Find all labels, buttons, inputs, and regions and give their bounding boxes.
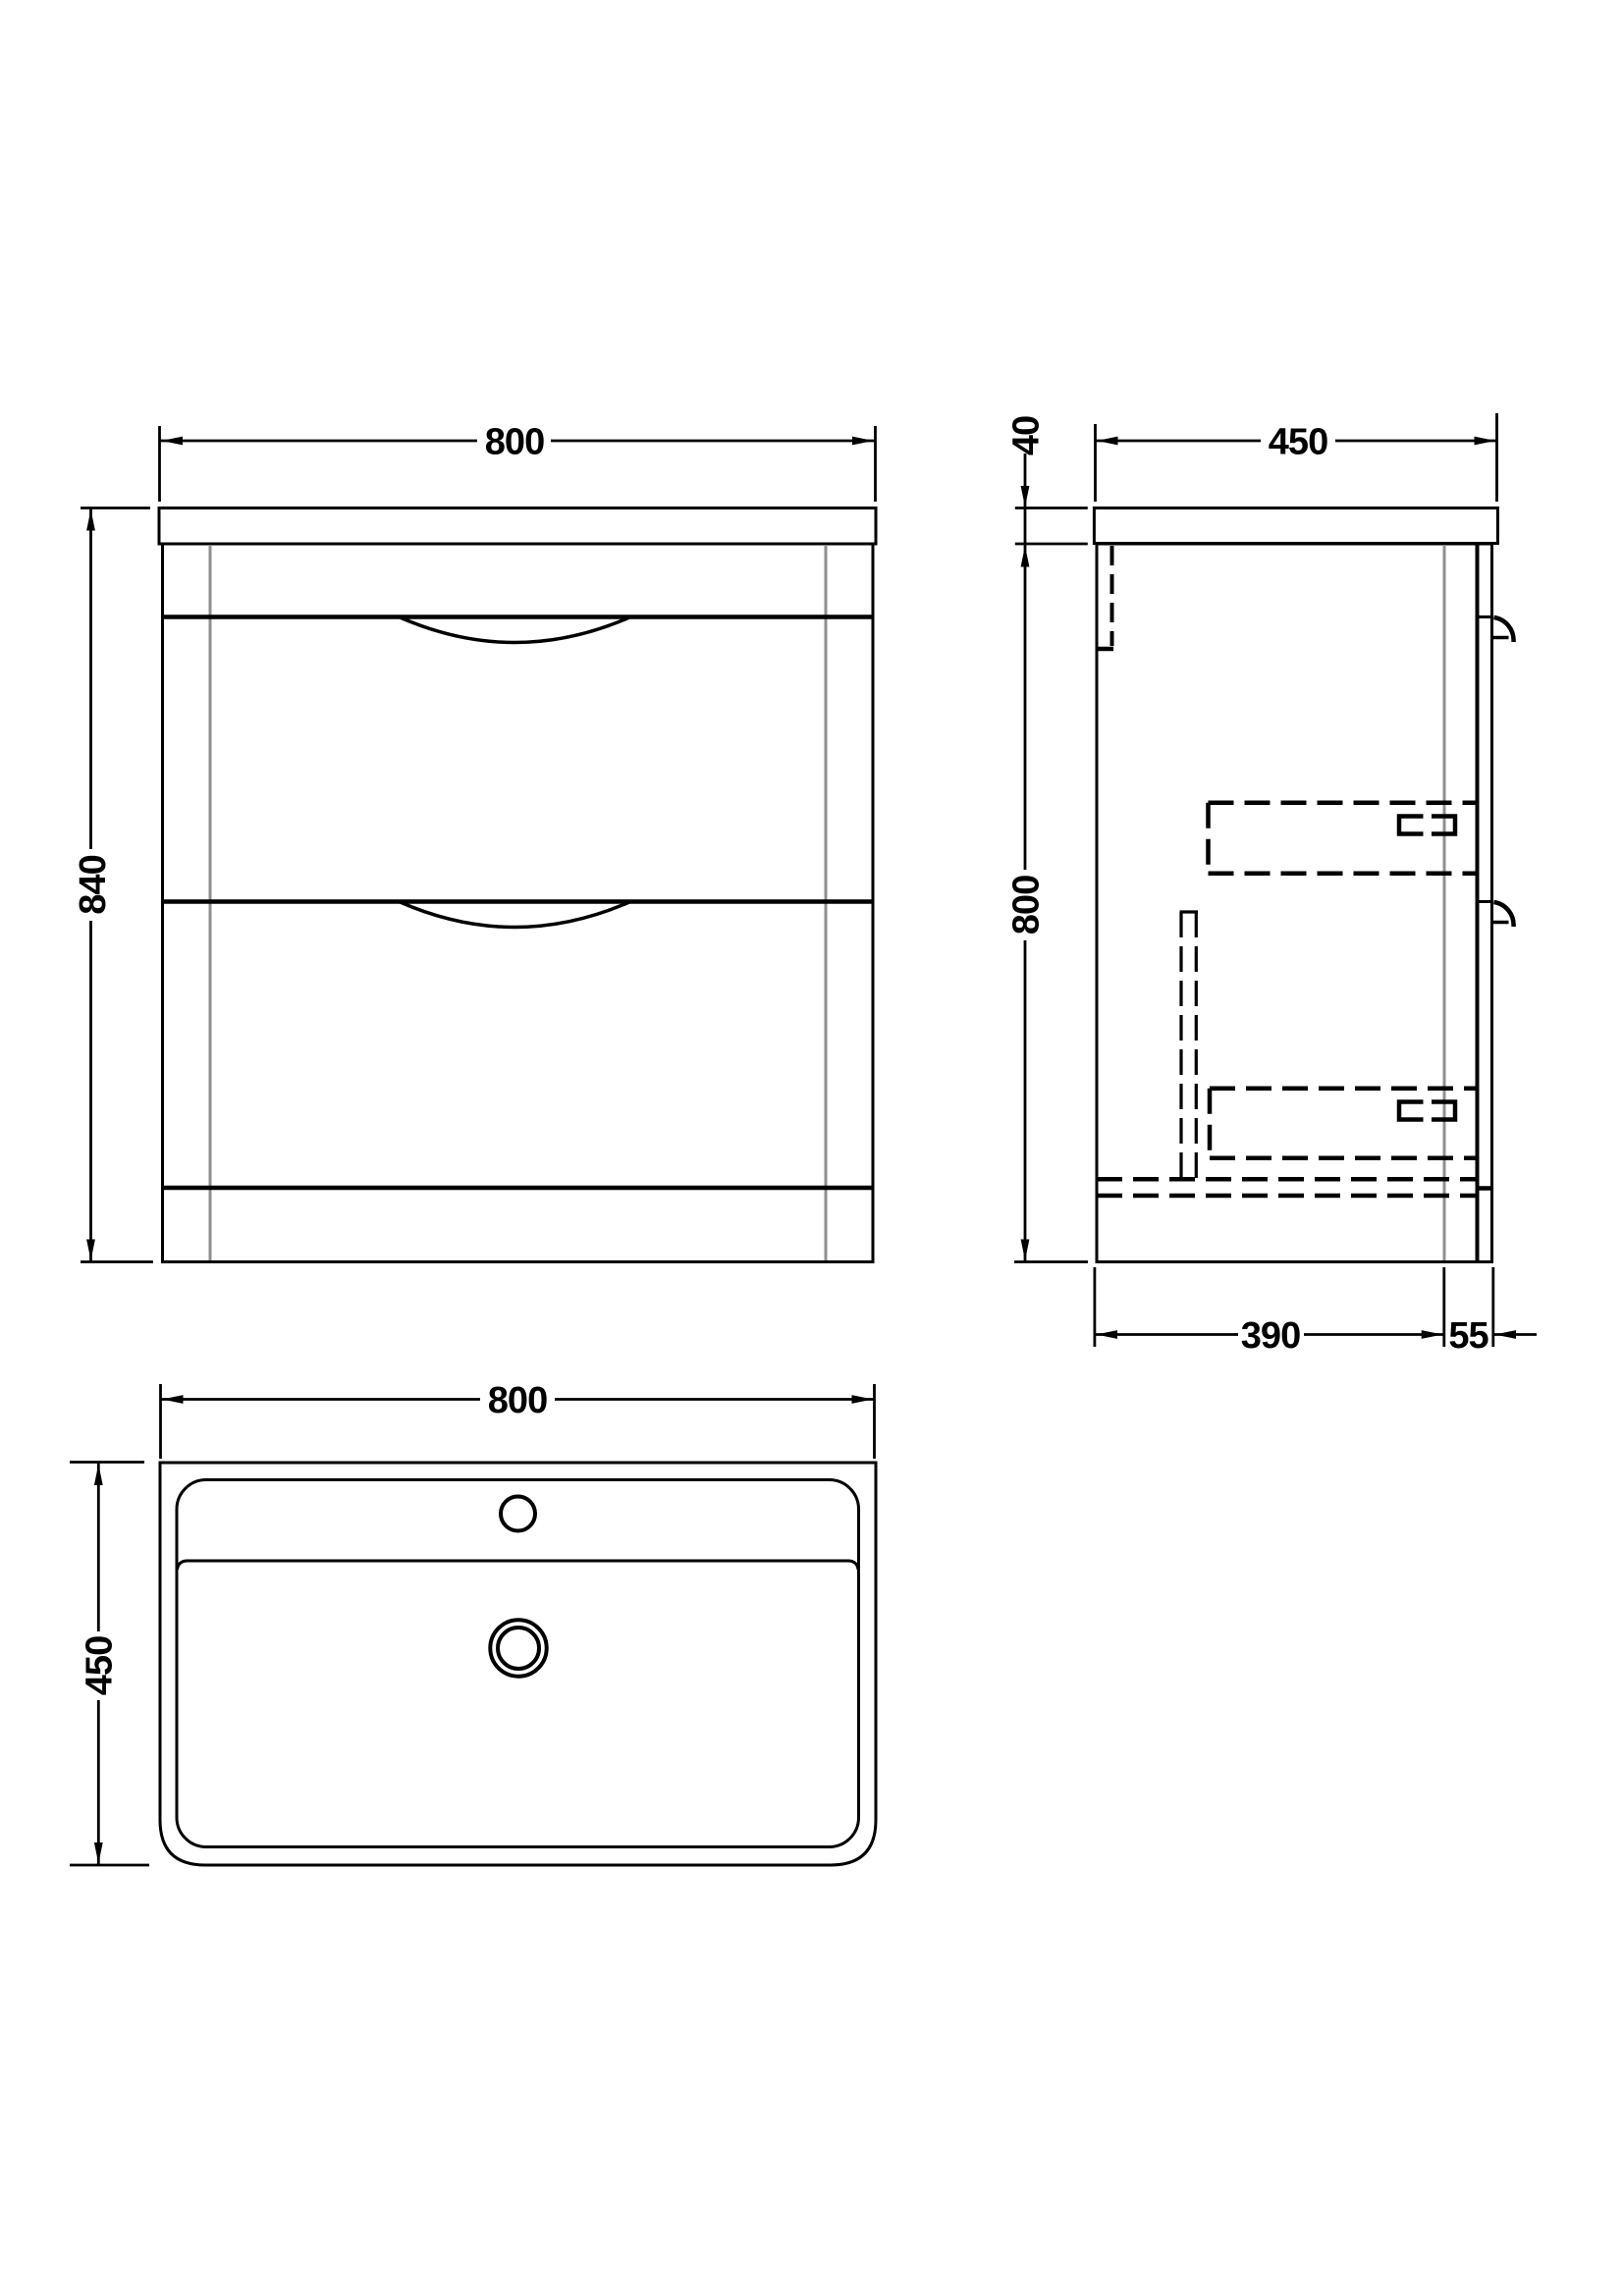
svg-text:840: 840 <box>73 855 114 914</box>
svg-text:450: 450 <box>1269 422 1327 463</box>
svg-text:800: 800 <box>485 422 544 463</box>
svg-text:390: 390 <box>1241 1315 1300 1357</box>
svg-text:800: 800 <box>1006 876 1048 934</box>
svg-text:55: 55 <box>1448 1315 1488 1357</box>
svg-text:450: 450 <box>80 1636 121 1695</box>
svg-text:40: 40 <box>1006 416 1048 455</box>
svg-text:800: 800 <box>488 1380 547 1421</box>
